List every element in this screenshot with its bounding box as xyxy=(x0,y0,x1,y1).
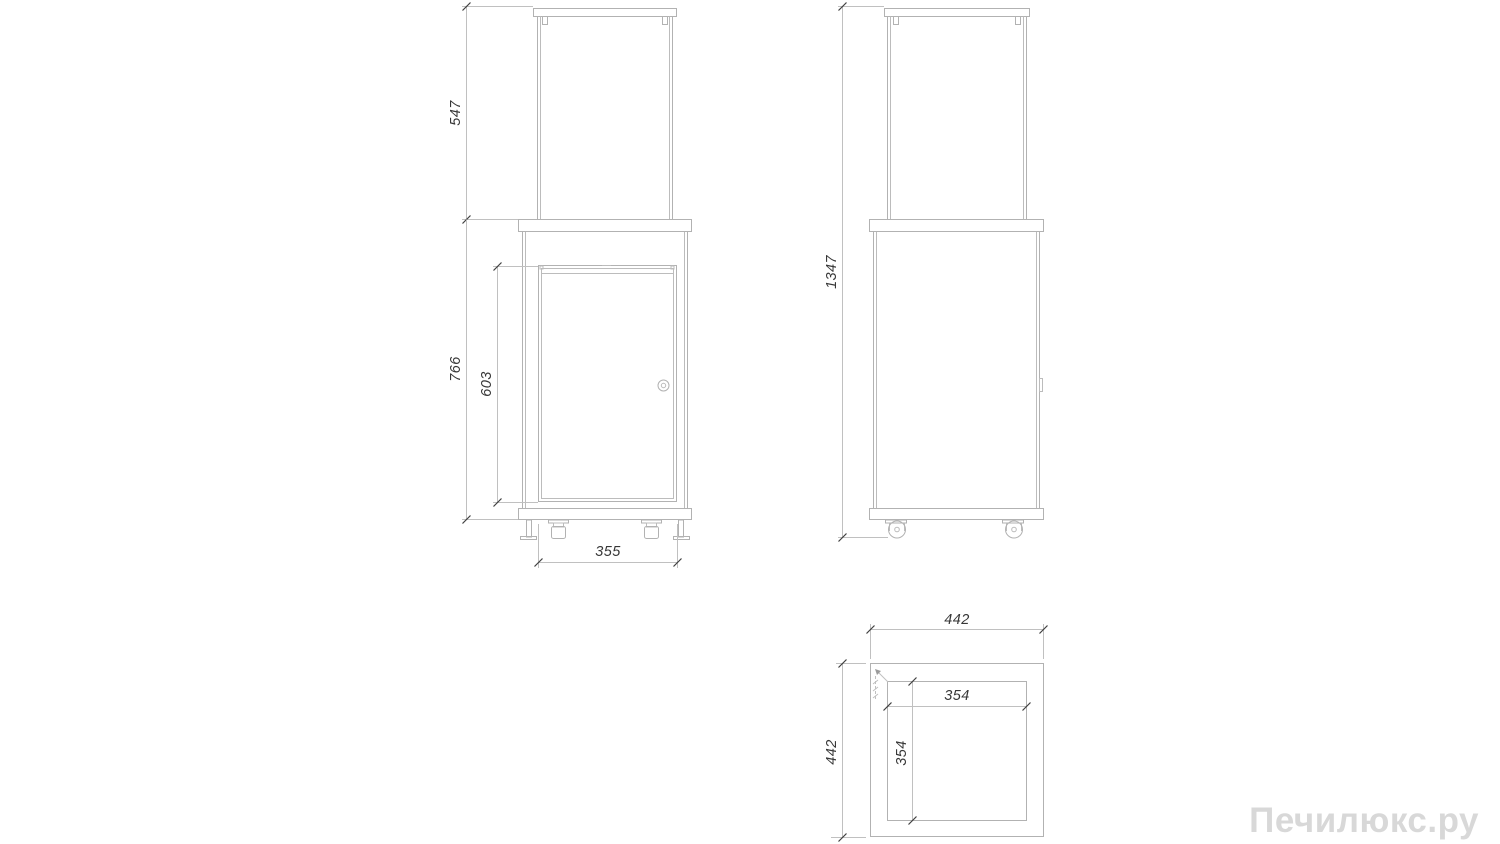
side-glass-cap xyxy=(885,9,1030,17)
side-top-plate xyxy=(870,220,1044,232)
side-wheel-left xyxy=(889,521,906,538)
front-caster-right xyxy=(642,520,662,539)
front-cap-tab-right xyxy=(663,17,668,25)
dim-label-354-width: 354 xyxy=(944,688,969,704)
dim-label-1347: 1347 xyxy=(824,255,840,289)
top-view: 442 442 354 xyxy=(824,612,1048,842)
plan-corner-mark xyxy=(873,669,888,700)
front-foot-right xyxy=(679,520,684,537)
dim-front-door-height: 603 xyxy=(479,263,538,507)
dim-plan-overall-width: 442 xyxy=(867,612,1048,659)
door-hinge-top-right xyxy=(671,266,674,269)
dim-front-glass-height: 547 xyxy=(448,3,533,224)
dim-plan-glass-width: 354 xyxy=(884,688,1031,711)
front-glass-chamber xyxy=(534,9,677,220)
front-view: 547 766 603 xyxy=(448,3,692,569)
front-bottom-plate xyxy=(519,509,692,520)
dim-label-355: 355 xyxy=(595,544,621,560)
dim-label-354-depth: 354 xyxy=(894,740,910,765)
side-caster-left xyxy=(886,520,907,538)
side-lock-profile xyxy=(1040,379,1043,392)
door-inner-outline xyxy=(542,269,674,499)
dim-label-442-width: 442 xyxy=(944,612,969,628)
front-feet xyxy=(521,520,690,540)
front-foot-left xyxy=(527,520,532,537)
dim-plan-overall-depth: 442 xyxy=(824,660,866,842)
dim-side-overall-height: 1347 xyxy=(824,3,888,542)
side-cap-tab-right xyxy=(1016,17,1021,25)
door-hinge-top xyxy=(540,266,543,269)
side-view: 1347 xyxy=(824,3,1044,542)
drawing-svg: 547 766 603 xyxy=(0,0,1500,844)
side-cap-tab-left xyxy=(894,17,899,25)
front-cap-tab-left xyxy=(543,17,548,25)
front-glass-cap xyxy=(534,9,677,17)
dim-label-603: 603 xyxy=(479,371,495,396)
front-door xyxy=(539,266,677,502)
door-outline xyxy=(539,266,677,502)
front-caster-left xyxy=(549,520,569,539)
technical-drawing-page: 547 766 603 xyxy=(0,0,1500,844)
side-glass-chamber xyxy=(885,9,1030,220)
dim-front-door-width: 355 xyxy=(535,524,682,568)
front-top-plate xyxy=(519,220,692,232)
door-lock-keyhole xyxy=(661,383,665,387)
watermark-logo: Печилюкс.ру xyxy=(1249,803,1479,838)
dim-plan-glass-depth: 354 xyxy=(894,678,917,825)
dim-label-766: 766 xyxy=(448,356,464,382)
side-caster-right xyxy=(1003,520,1024,538)
side-cabinet xyxy=(870,220,1044,520)
dim-label-547: 547 xyxy=(448,100,464,126)
door-lock xyxy=(658,380,669,391)
side-wheel-right xyxy=(1006,521,1023,538)
side-bottom-plate xyxy=(870,509,1044,520)
dim-label-442-depth: 442 xyxy=(824,739,840,764)
front-cabinet xyxy=(519,220,692,520)
